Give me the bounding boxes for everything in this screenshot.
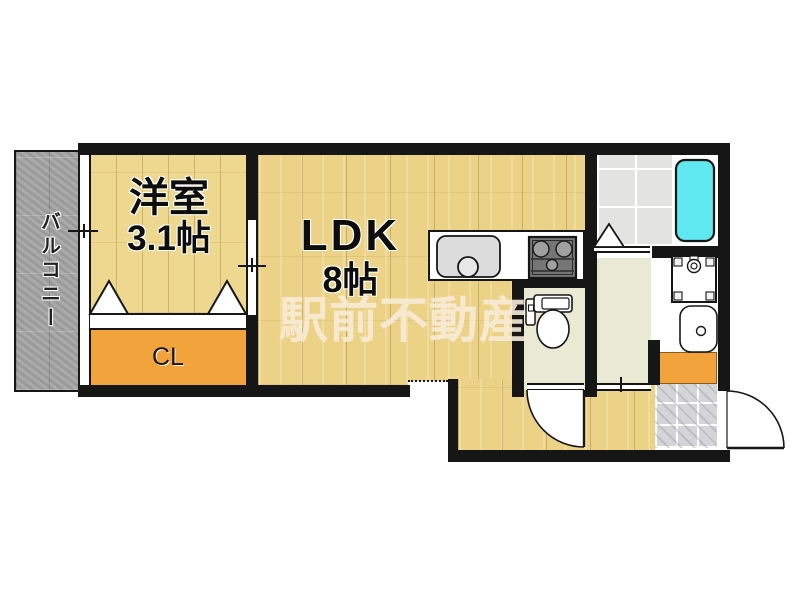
western-room-size: 3.1帖 bbox=[92, 220, 246, 259]
closet-label: CL bbox=[90, 330, 246, 385]
western-room-label: 洋室 3.1帖 bbox=[92, 176, 246, 259]
closet-folding-door-icon bbox=[90, 281, 128, 314]
closet-folding-door-icon bbox=[208, 281, 246, 314]
washroom-door-tick bbox=[620, 377, 622, 392]
burner-icon bbox=[547, 260, 558, 271]
drain-icon bbox=[697, 327, 706, 336]
western-room-name: 洋室 bbox=[92, 176, 246, 220]
window-tick-v bbox=[83, 224, 85, 238]
washbasin bbox=[680, 306, 717, 352]
sink-drain-icon bbox=[458, 257, 478, 277]
washing-machine-pan bbox=[672, 256, 716, 302]
gas-stove bbox=[529, 237, 576, 278]
bathtub bbox=[676, 160, 714, 241]
entrance-door-swing bbox=[727, 391, 784, 448]
toilet-door-swing bbox=[527, 390, 584, 447]
toilet bbox=[526, 295, 572, 348]
slider-tick-v bbox=[251, 258, 253, 272]
burner-icon bbox=[556, 241, 572, 257]
burner-icon bbox=[533, 241, 549, 257]
watermark: 駅前不動産 bbox=[279, 281, 529, 352]
ldk-name: LDK bbox=[258, 212, 443, 260]
bath-folding-door-icon bbox=[594, 224, 624, 247]
faucet-icon bbox=[688, 260, 701, 273]
floor-plan: バルコニー bbox=[0, 0, 800, 600]
